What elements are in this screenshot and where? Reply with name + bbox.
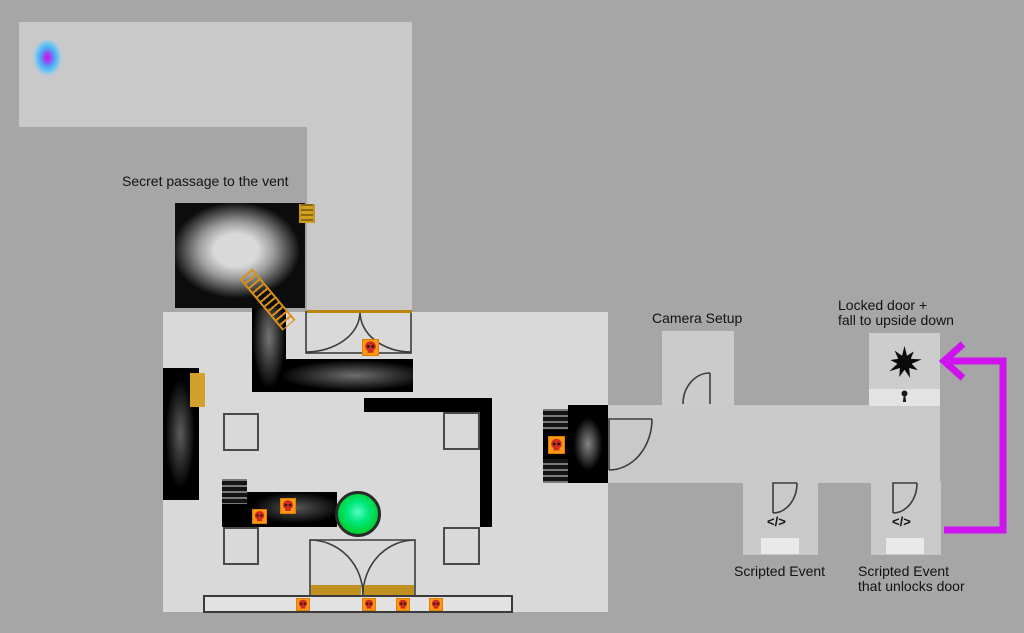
vent-room — [175, 203, 305, 308]
green-orb-icon — [335, 491, 381, 537]
stairs-left-base — [222, 504, 247, 527]
stairs-left — [222, 479, 247, 504]
hazard-skull-icon — [362, 598, 376, 611]
hazard-skull-icon — [252, 509, 267, 524]
wall-gold-panel — [190, 373, 205, 407]
portal-icon — [30, 35, 65, 80]
locked-door-label: Locked door + fall to upside down — [838, 298, 954, 328]
secret-passage-label: Secret passage to the vent — [122, 174, 289, 189]
pillar — [443, 412, 480, 450]
hazard-skull-icon — [396, 598, 410, 611]
main-room — [163, 312, 608, 612]
keyhole-icon — [900, 390, 909, 403]
dark-room-right — [568, 405, 608, 483]
level-map: Secret passage to the vent Camera Setup … — [0, 0, 1024, 633]
secret-corridor-horizontal — [283, 359, 413, 392]
door-plate-left — [311, 585, 361, 595]
pressure-plate-1 — [761, 538, 799, 554]
door-lintel — [307, 310, 412, 313]
hazard-skull-icon — [429, 598, 443, 611]
wall-l-vertical — [480, 412, 492, 527]
pressure-plate-2 — [886, 538, 924, 554]
pillar — [223, 527, 259, 565]
code-icon: </> — [892, 514, 911, 529]
code-icon: </> — [767, 514, 786, 529]
corridor-top-left-vertical — [307, 127, 412, 312]
pillar — [223, 413, 259, 451]
pillar — [443, 527, 480, 565]
camera-room — [662, 331, 734, 406]
wall-l-horizontal — [364, 398, 492, 412]
vent-hatch-ladder-icon — [299, 204, 315, 223]
bottom-walkway — [203, 595, 513, 613]
corridor-top-left-horizontal — [19, 22, 412, 127]
scripted-event-label-1: Scripted Event — [734, 564, 825, 579]
corridor-right — [608, 405, 940, 483]
hazard-skull-icon — [362, 339, 379, 356]
scripted-event-label-2: Scripted Event that unlocks door — [858, 564, 965, 594]
hazard-skull-icon — [280, 498, 296, 514]
star-burst-icon — [886, 344, 923, 381]
camera-setup-label: Camera Setup — [652, 311, 742, 326]
hazard-skull-icon — [548, 436, 565, 454]
hazard-skull-icon — [296, 598, 310, 611]
door-plate-right — [364, 585, 414, 595]
